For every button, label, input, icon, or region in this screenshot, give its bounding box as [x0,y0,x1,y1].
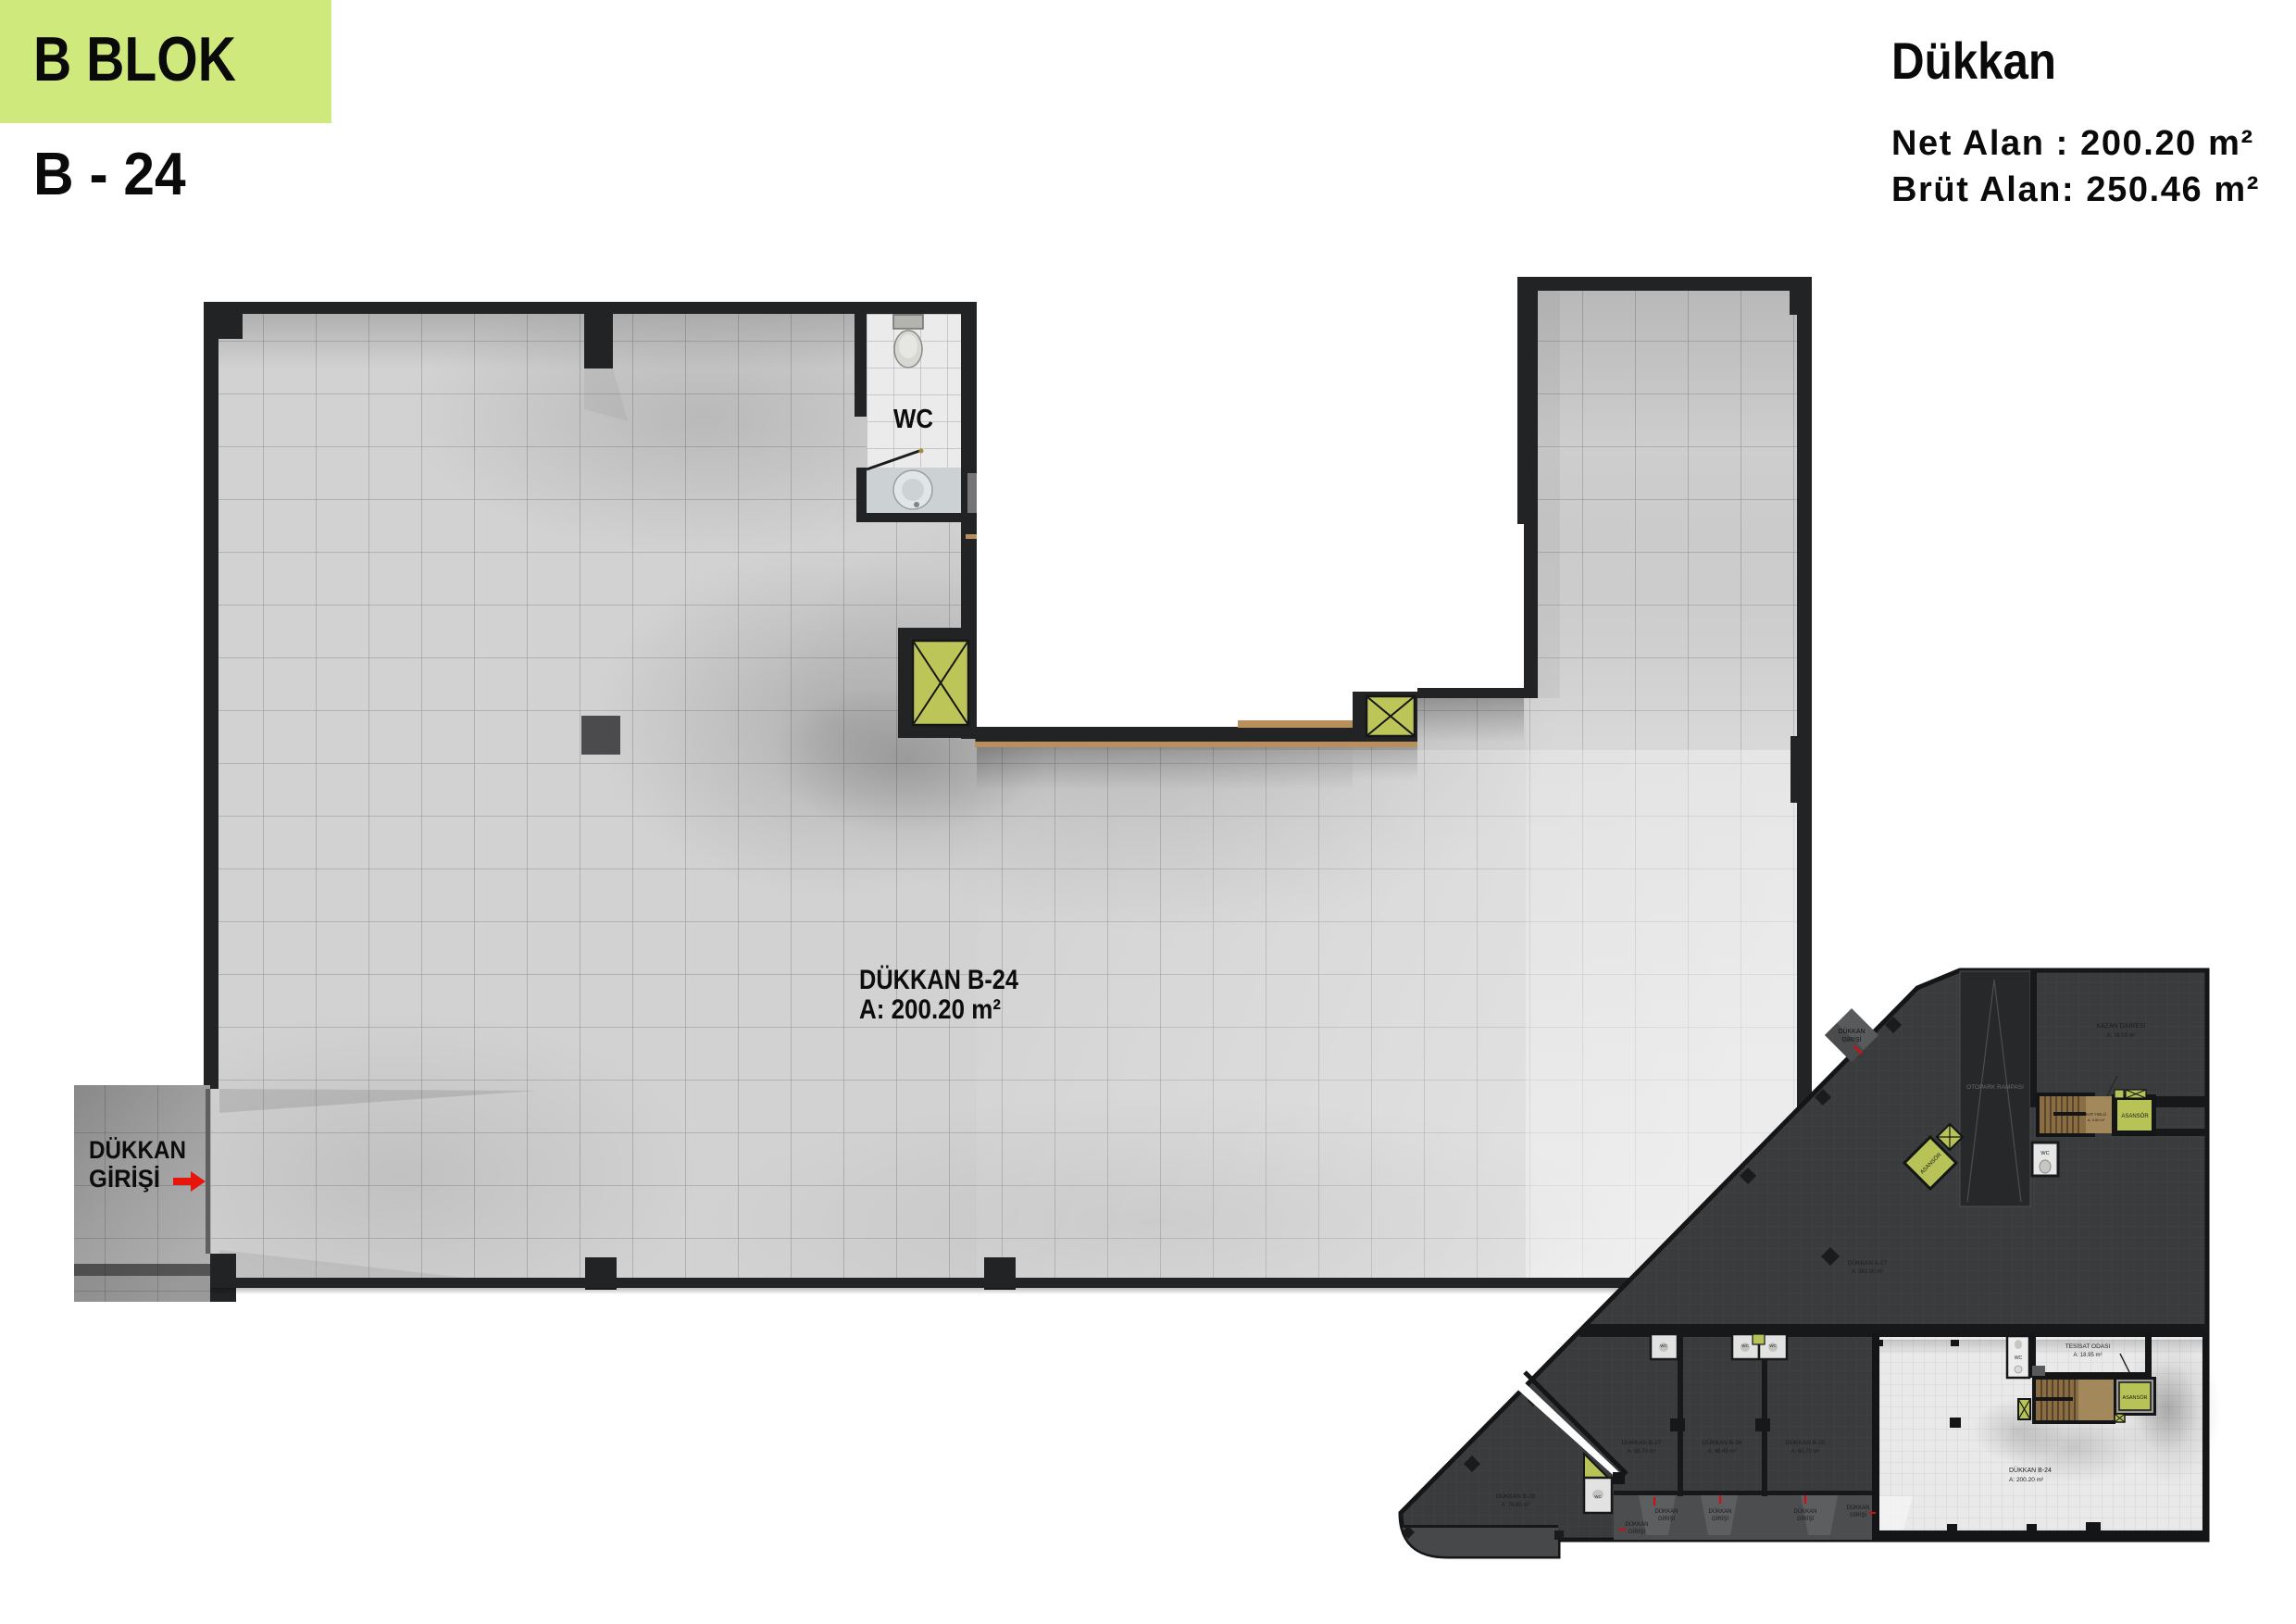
svg-text:A: 18.95 m²: A: 18.95 m² [2073,1353,2102,1358]
svg-text:GİRİŞİ: GİRİŞİ [1658,1516,1675,1522]
svg-text:GİRİŞİ: GİRİŞİ [1841,1035,1861,1043]
svg-text:DÜKKAN: DÜKKAN [1654,1508,1678,1515]
svg-text:DÜKKAN B-24: DÜKKAN B-24 [859,965,1018,995]
svg-text:DÜKKAN: DÜKKAN [89,1136,186,1164]
svg-text:DÜKKAN A-27: DÜKKAN A-27 [1848,1259,1888,1267]
svg-text:A: 200.20 m²: A: 200.20 m² [859,994,1001,1025]
svg-text:DÜKKAN B-24: DÜKKAN B-24 [2009,1467,2052,1474]
svg-text:A: 3.50 m²: A: 3.50 m² [2088,1118,2105,1122]
svg-text:WC: WC [1769,1343,1777,1348]
svg-text:WC: WC [2040,1151,2049,1156]
svg-text:KAZAN DAİRESİ: KAZAN DAİRESİ [2096,1021,2145,1030]
svg-text:A: 76.85 m²: A: 76.85 m² [1501,1503,1529,1508]
svg-text:DÜKKAN: DÜKKAN [1625,1521,1648,1528]
svg-text:DÜKKAN B-28: DÜKKAN B-28 [1496,1493,1536,1500]
svg-text:DÜKKAN B-27: DÜKKAN B-27 [1622,1439,1662,1446]
svg-text:A: 46.45 m²: A: 46.45 m² [1707,1449,1736,1455]
svg-text:GİRİŞİ: GİRİŞİ [89,1165,160,1193]
svg-text:WC: WC [1594,1494,1602,1499]
svg-text:DÜKKAN: DÜKKAN [1708,1508,1731,1515]
svg-text:GİRİŞİ: GİRİŞİ [1712,1516,1728,1522]
svg-text:DÜKKAN B-25: DÜKKAN B-25 [1786,1439,1826,1446]
svg-text:GİRİŞİ: GİRİŞİ [1850,1512,1866,1518]
svg-text:ASANSÖR: ASANSÖR [2121,1113,2149,1119]
svg-text:DÜKKAN: DÜKKAN [1838,1028,1865,1035]
svg-text:GİRİŞİ: GİRİŞİ [1628,1529,1645,1535]
svg-text:WC: WC [1660,1343,1667,1348]
svg-text:WC: WC [1741,1343,1749,1348]
svg-text:A: 60.70 m²: A: 60.70 m² [1791,1449,1819,1455]
svg-text:GİRİŞİ: GİRİŞİ [1797,1516,1814,1522]
svg-text:WC: WC [893,405,933,434]
svg-text:OTOPARK RAMPASI: OTOPARK RAMPASI [1966,1084,2024,1091]
svg-text:DÜKKAN: DÜKKAN [1846,1505,1869,1511]
svg-text:A: 383.00 m²: A: 383.00 m² [1852,1269,1883,1275]
svg-text:DÜKKAN B-26: DÜKKAN B-26 [1703,1439,1742,1446]
svg-text:A: 58.70 m²: A: 58.70 m² [1627,1449,1655,1455]
svg-text:A: 200.20 m²: A: 200.20 m² [2009,1477,2044,1483]
svg-text:ASANSÖR: ASANSÖR [2123,1394,2148,1401]
svg-text:KAT HOLÜ: KAT HOLÜ [2086,1111,2106,1117]
svg-text:DÜKKAN: DÜKKAN [1793,1508,1816,1515]
svg-text:A: 76.00 m²: A: 76.00 m² [2106,1033,2135,1039]
svg-text:WC: WC [2015,1355,2023,1361]
svg-text:TESİSAT ODASI: TESİSAT ODASI [2065,1342,2111,1350]
